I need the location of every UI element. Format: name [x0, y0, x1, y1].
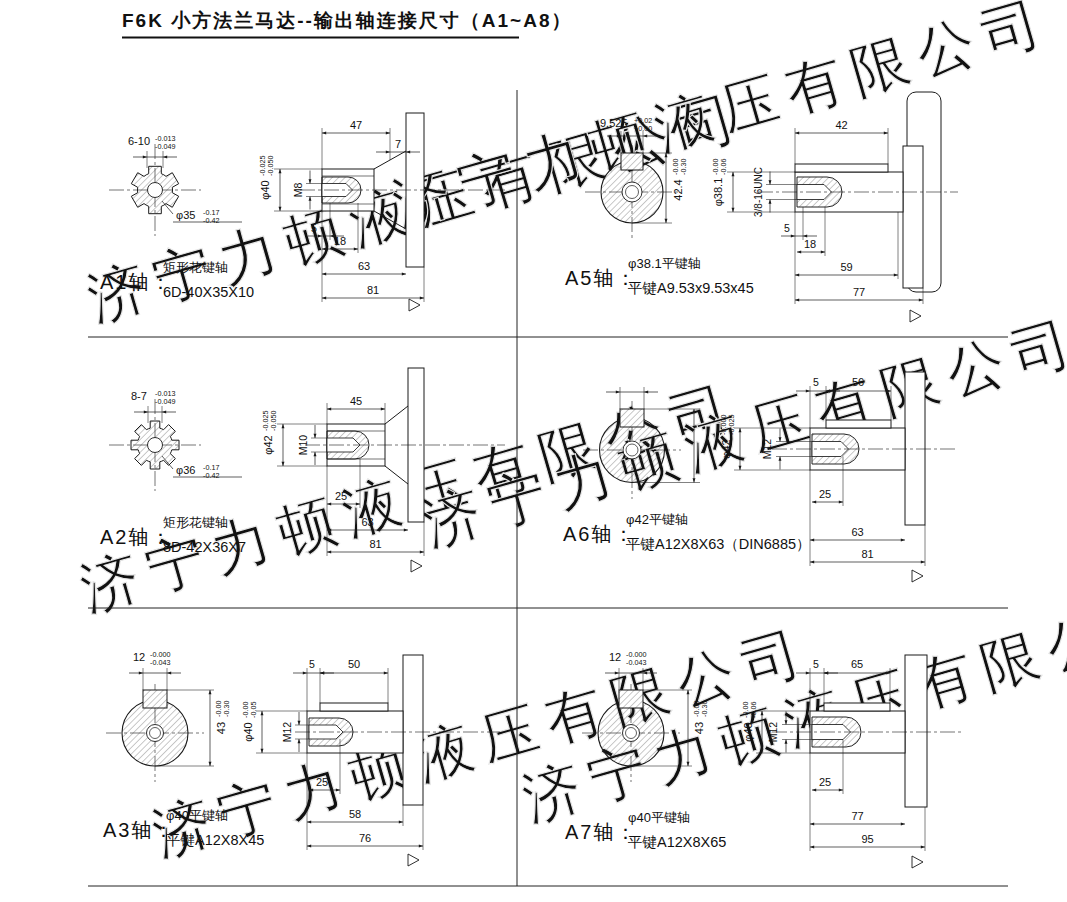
panel-desc-1: 矩形花键轴: [163, 515, 228, 530]
rotated-dim-label: 42.4-0.00-0.30: [671, 159, 688, 201]
thread-label: M12: [761, 439, 773, 460]
key-side-view: [824, 703, 890, 711]
dimension-value: 95: [861, 833, 873, 845]
dimension-value: 12: [133, 651, 145, 663]
panel-desc-2: 8D-42X36X7: [163, 539, 246, 555]
page-title: F6K 小方法兰马达--输出轴连接尺寸（A1~A8）: [122, 10, 573, 31]
tolerance-lower: -0.05: [249, 702, 258, 718]
technical-drawing-canvas: 济宁力顿液压有限公司济宁力顿液压有限公司济宁力顿液压有限公司济宁力顿液压有限公司…: [0, 0, 1067, 902]
tolerance-lower: -0.42: [203, 216, 219, 225]
tolerance-lower: -0.049: [155, 142, 175, 151]
flange-plate: [403, 655, 423, 805]
flange-plate: [903, 146, 923, 288]
dimension-value: 43: [215, 722, 227, 734]
flag-marker: [411, 560, 422, 572]
rotated-thread-label: M12: [761, 439, 773, 460]
rotated-dim-label: φ42-0.025-0.050: [261, 411, 278, 455]
panel-desc-1: φ40平键轴: [628, 810, 690, 825]
panel-desc-2: 6D-40X35X10: [163, 284, 254, 300]
dimension-value: 18: [804, 238, 816, 250]
dimension-value: 25: [335, 490, 347, 502]
dimension-value: 42: [835, 119, 847, 131]
dimension-value: 5: [311, 222, 317, 234]
dimension-value: φ40: [259, 180, 271, 199]
dimension-value: 50: [348, 658, 360, 670]
panel-label: A2轴：: [100, 526, 172, 548]
dimension-value: 5: [813, 658, 819, 670]
dimension-value: 5: [309, 658, 315, 670]
dimension-value: 25: [819, 488, 831, 500]
flange-plate: [905, 655, 927, 807]
dimension-value: 18: [334, 235, 346, 247]
key-side-view: [320, 703, 388, 711]
panel-label: A7轴：: [565, 821, 637, 843]
flag-marker: [408, 854, 419, 866]
dimension-value: 42.4: [672, 179, 684, 200]
panel-desc-1: φ40平键轴: [166, 808, 228, 823]
dimension-value: 43: [693, 722, 705, 734]
key-side-view: [795, 164, 888, 172]
dimension-value: 59: [840, 261, 852, 273]
dimension-value: 45: [350, 395, 362, 407]
center-hole: [148, 438, 163, 453]
tolerance-lower: -0.30: [679, 159, 688, 175]
flange-plate: [905, 372, 925, 525]
flag-marker: [409, 299, 420, 311]
dimension-value: 6-10: [128, 135, 150, 147]
panel-desc-1: φ42平键轴: [626, 512, 688, 527]
key-end-view: [619, 690, 643, 708]
key-end-view: [621, 153, 643, 170]
panel-desc-2: 平键A12X8X45: [166, 832, 264, 848]
panel-label: A1轴：: [100, 271, 172, 293]
tolerance-lower: -0.42: [203, 471, 219, 480]
center-hole: [148, 183, 163, 198]
dimension-value: 25: [819, 776, 831, 788]
center-hole: [622, 182, 642, 202]
dimension-value: 56: [852, 376, 864, 388]
dimension-value: 12: [609, 651, 621, 663]
panel-label: A3轴：: [103, 819, 175, 841]
rotated-dim-label: 43-0.00-0.30: [214, 701, 231, 735]
dimension-value: 47: [350, 119, 362, 131]
dimension-value: 81: [369, 538, 381, 550]
key-side-view: [826, 420, 891, 428]
dimension-value: 65: [851, 658, 863, 670]
tolerance-lower: -0.049: [155, 397, 175, 406]
taper-line: [385, 406, 408, 424]
drawing-page: 济宁力顿液压有限公司济宁力顿液压有限公司济宁力顿液压有限公司济宁力顿液压有限公司…: [0, 0, 1067, 902]
thread-label: M12: [281, 722, 293, 743]
dimension-value: 81: [861, 548, 873, 560]
tolerance-lower: -0.30: [700, 701, 709, 717]
watermark-text: 济宁力顿液压有限公司: [415, 307, 1067, 557]
key-end-view: [620, 409, 644, 427]
tolerance-lower: -0.30: [222, 701, 231, 717]
tolerance-lower: -0.025: [727, 415, 736, 435]
center-hole: [623, 725, 640, 742]
dimension-value: 77: [851, 810, 863, 822]
panel-desc-1: 矩形花键轴: [163, 260, 228, 275]
dimension-value: φ42: [262, 435, 274, 454]
panel-desc-2: 平键A9.53x9.53x45: [628, 280, 754, 296]
dimension-value: φ35: [176, 209, 195, 221]
rotated-dim-label: φ40-0.025-0.050: [258, 156, 275, 200]
dimension-value: 9.525: [600, 117, 628, 129]
panel-desc-2: 平键A12X8X65: [628, 834, 726, 850]
center-hole: [147, 725, 164, 742]
dimension-value: 63: [851, 526, 863, 538]
dimension-value: φ40: [742, 722, 754, 741]
flag-marker: [912, 856, 923, 868]
dimension-value: 63: [358, 260, 370, 272]
flag-marker: [912, 570, 923, 582]
rotated-dim-label: φ38.1-0.00-0.06: [711, 159, 728, 207]
dimension-value: 7: [395, 138, 401, 150]
tolerance-lower: -0.06: [719, 159, 728, 175]
panel-label: A6轴：: [563, 523, 635, 545]
tolerance-lower: -0.043: [626, 658, 646, 667]
dimension-value: 63: [361, 516, 373, 528]
dimension-value: 8-7: [131, 390, 147, 402]
dimension-value: 76: [359, 832, 371, 844]
dimension-value: 5: [784, 222, 790, 234]
panel-desc-1: φ38.1平键轴: [628, 256, 701, 271]
tolerance-lower: -0.050: [269, 411, 278, 431]
panel-label: A5轴：: [565, 267, 637, 289]
dimension-value: 81: [367, 284, 379, 296]
rotated-dim-label: φ40-0.00-0.05: [241, 702, 258, 742]
dimension-value: 58: [349, 808, 361, 820]
rotated-thread-label: M12: [281, 722, 293, 743]
dimension-value: 5: [813, 376, 819, 388]
panel-desc-2: 平键A12X8X63（DIN6885）: [626, 536, 811, 552]
dimension-value: φ36: [176, 464, 195, 476]
tolerance-lower: -0.06: [749, 702, 758, 718]
dimension-value: φ40: [242, 722, 254, 741]
tolerance-lower: -0.050: [266, 156, 275, 176]
tolerance-lower: +0.00: [634, 124, 652, 133]
tolerance-lower: -0.043: [150, 658, 170, 667]
dimension-value: 77: [853, 286, 865, 298]
dimension-value: φ38.1: [712, 178, 724, 207]
dimension-value: 25: [316, 776, 328, 788]
key-end-view: [143, 690, 167, 708]
dimension-value: φ42: [720, 439, 732, 458]
flag-marker: [910, 310, 921, 322]
